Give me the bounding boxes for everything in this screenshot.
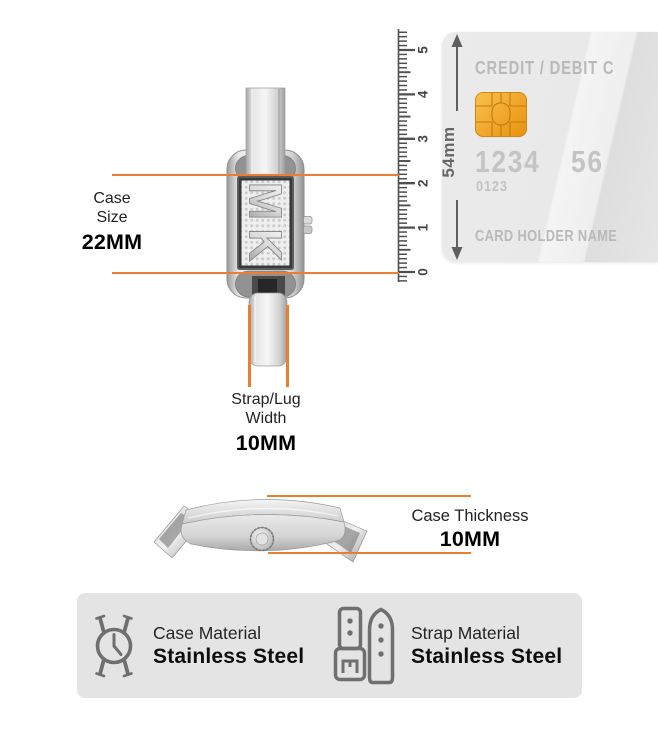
card-chip-icon bbox=[475, 92, 527, 137]
case-size-top-line bbox=[112, 174, 399, 177]
case-material-item: Case Material Stainless Steel bbox=[89, 611, 304, 681]
strap-width-label-line2: Width bbox=[196, 410, 336, 429]
materials-panel: Case Material Stainless Steel St bbox=[77, 593, 582, 698]
mk-logo-m: M bbox=[240, 182, 292, 220]
ruler-tick-label: 5 bbox=[416, 46, 431, 54]
watch-crown bbox=[304, 217, 313, 234]
watch-front-view: M K bbox=[205, 80, 325, 380]
card-holder-label: CARD HOLDER NAME bbox=[475, 228, 617, 246]
watch-side-view bbox=[140, 478, 380, 578]
ruler: 012345 bbox=[395, 26, 435, 288]
strap-width-right-line bbox=[286, 305, 289, 387]
case-thickness-value: 10MM bbox=[370, 527, 570, 551]
mk-logo-k: K bbox=[240, 228, 292, 261]
strap-width-left-line bbox=[248, 305, 251, 387]
ruler-tick-label: 1 bbox=[416, 223, 431, 231]
ruler-tick-label: 0 bbox=[416, 268, 431, 276]
case-size-value: 22MM bbox=[52, 230, 172, 254]
case-size-label: Case Size 22MM bbox=[52, 190, 172, 254]
strap-width-label-line1: Strap/Lug bbox=[196, 391, 336, 410]
strap-width-value: 10MM bbox=[196, 431, 336, 455]
ruler-tick-label: 3 bbox=[416, 135, 431, 143]
strap-material-label: Strap Material bbox=[411, 623, 562, 644]
strap-material-value: Stainless Steel bbox=[411, 644, 562, 669]
ruler-tick-label: 4 bbox=[416, 90, 431, 98]
watch-case-icon bbox=[89, 611, 139, 681]
credit-card: CREDIT / DEBIT C 1234 56 0123 CARD HOLDE… bbox=[442, 32, 658, 262]
case-material-value: Stainless Steel bbox=[153, 644, 304, 669]
case-thickness-top-line bbox=[267, 495, 471, 498]
card-type-label: CREDIT / DEBIT C bbox=[475, 58, 614, 79]
watch-strap-icon bbox=[333, 606, 397, 686]
case-size-label-line1: Case bbox=[52, 190, 172, 209]
card-number-group1: 1234 bbox=[475, 144, 540, 180]
case-size-label-line2: Size bbox=[52, 209, 172, 228]
card-height-label: 54mm bbox=[439, 126, 459, 177]
card-number-group2: 56 bbox=[571, 144, 604, 180]
case-thickness-bottom-line bbox=[268, 552, 471, 555]
case-thickness-label: Case Thickness 10MM bbox=[370, 507, 570, 551]
side-crown bbox=[251, 528, 274, 551]
strap-material-item: Strap Material Stainless Steel bbox=[333, 606, 562, 686]
watch-dimension-diagram: M K Case Size 22MM Strap/Lug Width 10MM … bbox=[0, 0, 658, 734]
case-size-bottom-line bbox=[112, 272, 399, 275]
case-thickness-label-text: Case Thickness bbox=[370, 507, 570, 526]
strap-width-label: Strap/Lug Width 10MM bbox=[196, 391, 336, 455]
case-material-label: Case Material bbox=[153, 623, 304, 644]
card-number: 1234 56 bbox=[475, 144, 604, 180]
card-secondary-number: 0123 bbox=[476, 178, 508, 195]
ruler-tick-label: 2 bbox=[416, 179, 431, 187]
